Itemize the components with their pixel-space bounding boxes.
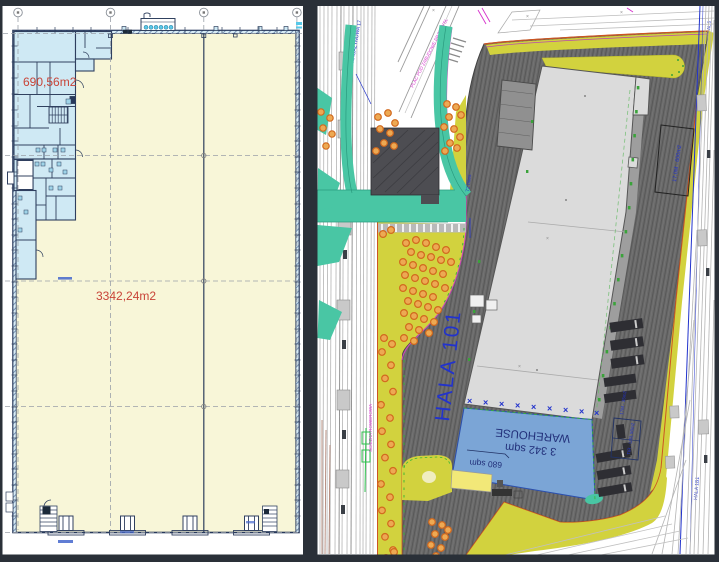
svg-text:×: × bbox=[515, 401, 520, 411]
svg-text:×: × bbox=[531, 402, 536, 412]
svg-text:×: × bbox=[432, 8, 435, 14]
svg-text:×: × bbox=[547, 404, 552, 414]
svg-text:×: × bbox=[526, 14, 529, 20]
svg-text:×: × bbox=[518, 364, 521, 370]
svg-text:3342,24m2: 3342,24m2 bbox=[96, 289, 156, 303]
svg-text:×: × bbox=[563, 405, 568, 415]
svg-text:×: × bbox=[594, 408, 599, 418]
svg-text:×: × bbox=[620, 10, 623, 16]
svg-text:×: × bbox=[467, 396, 472, 406]
svg-text:×: × bbox=[579, 407, 584, 417]
svg-text:×: × bbox=[483, 398, 488, 408]
svg-text:×: × bbox=[546, 236, 549, 242]
svg-text:×: × bbox=[499, 399, 504, 409]
svg-text:SCIEZKA ROWEROWA: SCIEZKA ROWEROWA bbox=[368, 404, 373, 452]
svg-text:690,56m2: 690,56m2 bbox=[23, 75, 77, 89]
